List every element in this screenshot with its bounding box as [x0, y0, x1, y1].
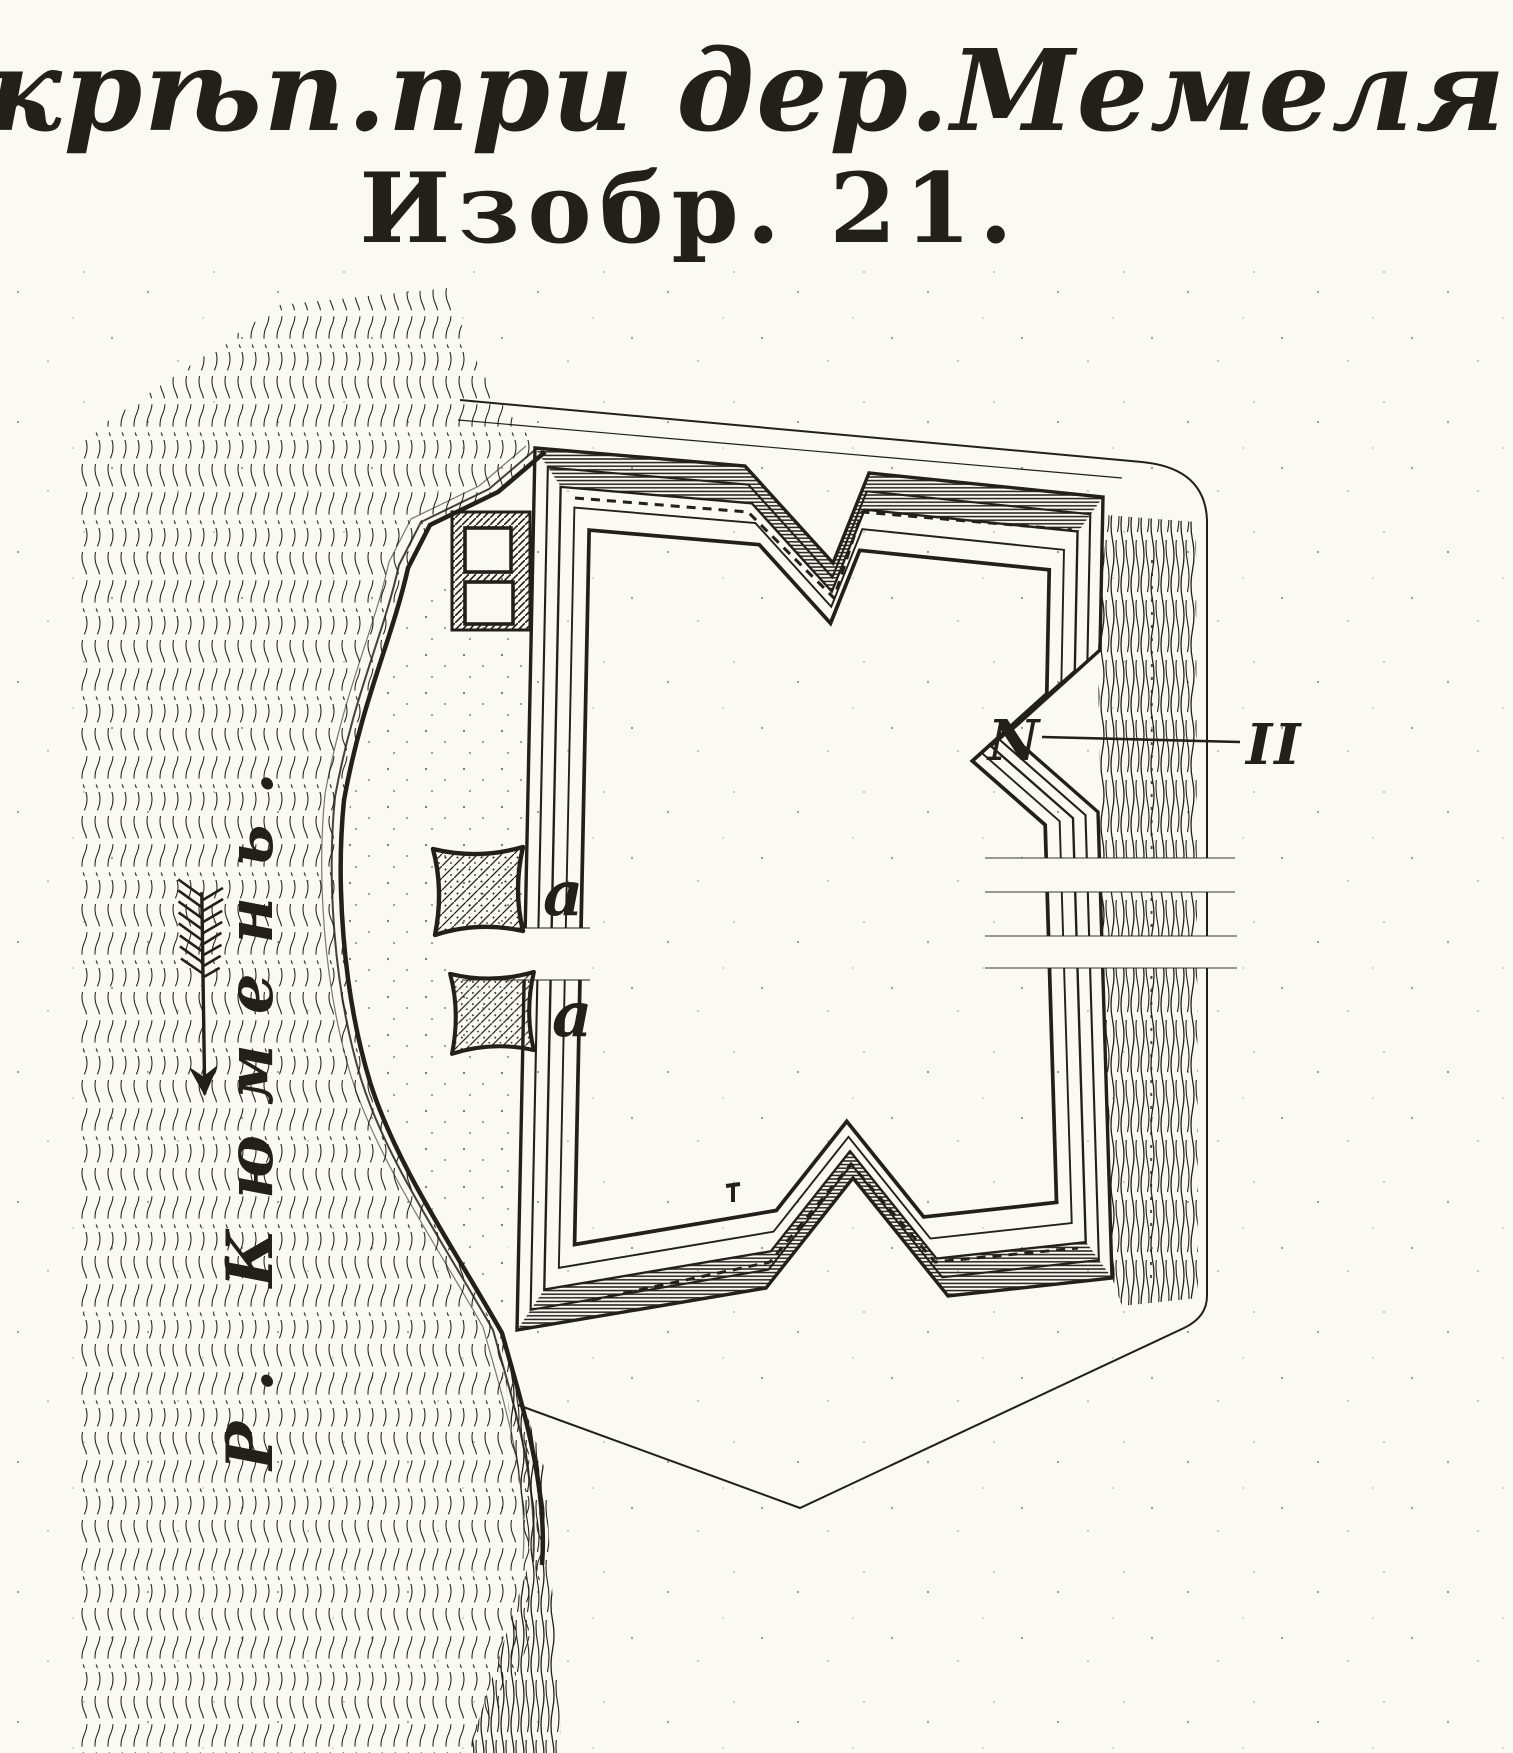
gate-gap-right-lower [985, 936, 1237, 968]
river-label: Р. Кюмень. [213, 742, 288, 1472]
redoubt-upper [433, 847, 523, 935]
figure-number: Изобр. 21. [359, 152, 1020, 265]
profile-label-ii: II [1244, 712, 1302, 778]
fortification-plan: a a N II Р. Кюмень. Укрѣп.при дер.Мемеля… [0, 0, 1513, 1753]
right-ditch-band [1098, 515, 1198, 1306]
redoubt-label-a-lower: a [552, 978, 592, 1051]
blockhouse [452, 512, 530, 630]
engraved-map-page: a a N II Р. Кюмень. Укрѣп.при дер.Мемеля… [0, 0, 1513, 1753]
gate-gap-right-upper [985, 858, 1235, 892]
page-title: Укрѣп.при дер.Мемеля [0, 26, 1507, 157]
redoubt-lower [450, 972, 534, 1054]
profile-label-n: N [986, 708, 1041, 774]
redoubt-label-a-upper: a [543, 857, 583, 930]
